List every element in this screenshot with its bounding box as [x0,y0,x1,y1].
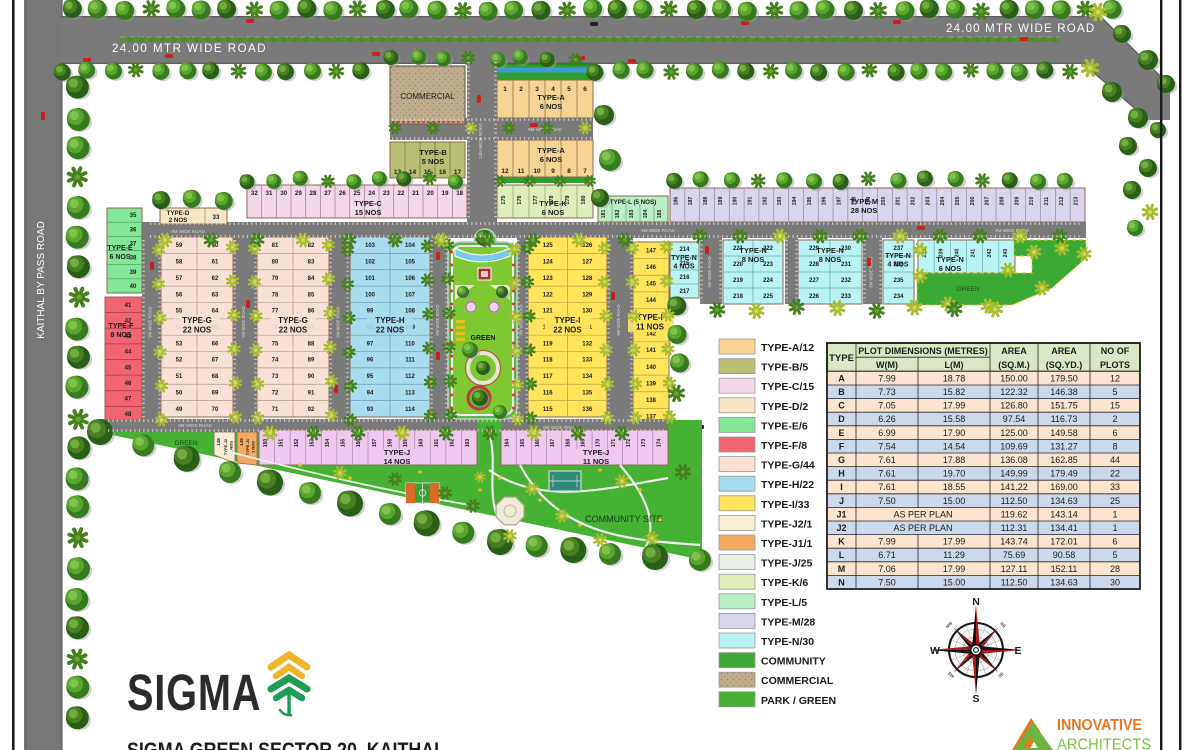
svg-text:108: 108 [405,309,416,315]
svg-text:176: 176 [517,195,523,204]
svg-text:11.29: 11.29 [943,550,965,560]
svg-text:TYPE-J/25: TYPE-J/25 [761,558,813,570]
svg-text:15.00: 15.00 [943,577,966,587]
svg-text:GREEN: GREEN [956,286,979,293]
svg-text:J2: J2 [836,523,846,533]
svg-text:235: 235 [893,278,904,284]
svg-text:22 NOS: 22 NOS [376,326,405,335]
svg-text:201: 201 [896,197,902,206]
svg-text:109.69: 109.69 [1000,441,1028,451]
svg-text:25: 25 [1110,496,1120,506]
svg-text:11 NOS: 11 NOS [583,457,609,466]
svg-text:121: 121 [543,309,554,315]
svg-text:97: 97 [367,341,374,347]
svg-text:92: 92 [308,407,315,413]
svg-text:7.61: 7.61 [878,469,896,479]
svg-text:11 NOS: 11 NOS [636,323,665,332]
svg-text:48: 48 [125,412,132,418]
svg-text:J1: J1 [836,509,846,519]
svg-text:6.26: 6.26 [878,414,896,424]
svg-text:146: 146 [646,265,657,271]
svg-text:6.99: 6.99 [878,428,896,438]
svg-text:157: 157 [372,439,378,448]
svg-text:80: 80 [272,260,279,266]
svg-text:213: 213 [1074,197,1080,206]
svg-text:TYPE-J: TYPE-J [384,448,410,457]
svg-text:57: 57 [176,276,183,282]
svg-text:I: I [840,482,843,492]
svg-text:8 NOS: 8 NOS [110,332,131,339]
svg-text:216: 216 [679,275,690,281]
svg-text:241: 241 [971,249,977,258]
svg-text:TYPE-J1/1: TYPE-J1/1 [761,538,813,550]
svg-text:19: 19 [442,190,449,197]
svg-text:23: 23 [383,190,390,197]
svg-text:N: N [972,596,980,608]
svg-text:17.99: 17.99 [943,564,966,574]
svg-text:67: 67 [212,358,219,364]
svg-text:44: 44 [1110,455,1120,465]
svg-text:24.00 MTR WIDE ROAD: 24.00 MTR WIDE ROAD [946,23,1095,35]
svg-text:(SQ.YD.): (SQ.YD.) [1046,360,1083,370]
svg-text:86: 86 [308,309,315,315]
svg-text:168: 168 [565,439,571,448]
svg-text:TYPE-H/22: TYPE-H/22 [761,479,814,491]
svg-text:5: 5 [1112,387,1117,397]
svg-text:152.11: 152.11 [1051,564,1078,574]
svg-text:25: 25 [354,190,361,197]
svg-text:28: 28 [310,190,317,197]
svg-text:L(M): L(M) [945,360,964,370]
svg-text:175: 175 [501,195,507,204]
svg-text:146.38: 146.38 [1050,387,1078,397]
svg-text:64: 64 [212,309,219,315]
svg-text:INNOVATIVE: INNOVATIVE [1057,718,1142,735]
svg-text:51: 51 [176,374,183,380]
svg-text:106: 106 [405,276,416,282]
svg-text:119: 119 [543,341,553,347]
svg-text:7.73: 7.73 [878,387,896,397]
svg-text:S: S [972,693,979,705]
svg-text:162: 162 [450,439,456,448]
svg-text:17.88: 17.88 [943,455,966,465]
svg-text:209: 209 [1014,197,1020,206]
svg-text:231: 231 [841,262,852,268]
svg-text:210: 210 [1029,197,1035,206]
svg-text:227: 227 [809,278,820,284]
svg-text:139: 139 [646,381,657,387]
svg-text:111: 111 [405,358,415,364]
svg-text:SIGMA: SIGMA [127,664,261,721]
svg-text:182: 182 [615,210,621,219]
svg-text:45: 45 [125,365,132,371]
svg-text:161: 161 [434,439,440,448]
svg-text:22 NOS: 22 NOS [553,326,582,335]
svg-text:17.99: 17.99 [943,537,966,547]
svg-text:202: 202 [911,197,917,206]
svg-text:56: 56 [176,292,183,298]
svg-text:68: 68 [212,374,219,380]
svg-text:TYPE-L/5: TYPE-L/5 [761,597,807,609]
svg-text:36: 36 [130,227,137,233]
svg-text:189: 189 [718,197,724,206]
svg-text:26: 26 [339,190,346,197]
svg-text:127.11: 127.11 [1001,564,1028,574]
svg-text:143.74: 143.74 [1000,537,1028,547]
svg-text:H: H [838,469,845,479]
svg-text:122: 122 [543,292,554,298]
svg-text:193: 193 [777,197,783,206]
svg-text:73: 73 [272,374,279,380]
svg-text:18.78: 18.78 [943,373,966,383]
svg-text:82: 82 [308,243,315,249]
svg-text:142: 142 [646,332,657,338]
svg-text:22: 22 [398,190,405,197]
svg-text:1: 1 [503,86,507,93]
svg-text:141: 141 [646,348,657,354]
svg-text:16: 16 [439,169,447,176]
svg-text:NO OF: NO OF [1101,346,1130,356]
svg-text:9M WIDE ROAD: 9M WIDE ROAD [435,304,440,335]
svg-text:TYPE: TYPE [829,353,854,364]
svg-text:126.80: 126.80 [1000,401,1028,411]
svg-text:234: 234 [893,294,904,300]
svg-text:115: 115 [543,407,553,413]
svg-text:186: 186 [673,197,679,206]
svg-text:TYPE-F/8: TYPE-F/8 [761,440,807,452]
svg-text:2: 2 [519,86,523,93]
svg-text:44: 44 [125,350,132,356]
svg-text:C: C [838,401,845,411]
svg-text:W: W [930,645,940,657]
svg-text:99: 99 [367,309,374,315]
svg-text:138: 138 [646,398,657,404]
svg-text:149: 149 [239,438,244,446]
svg-text:131.27: 131.27 [1050,441,1078,451]
svg-text:174: 174 [656,439,662,448]
svg-text:132: 132 [582,341,593,347]
svg-text:211: 211 [1044,197,1050,205]
svg-text:E: E [1014,645,1021,657]
svg-text:W(M): W(M) [876,360,898,370]
svg-text:74: 74 [272,358,279,364]
svg-text:33: 33 [213,214,220,221]
svg-text:9: 9 [551,168,555,175]
svg-text:126: 126 [582,243,593,249]
svg-text:31: 31 [266,190,273,197]
svg-text:143.14: 143.14 [1050,509,1078,519]
svg-text:27: 27 [324,190,331,197]
svg-text:14.54: 14.54 [943,441,966,451]
svg-text:243: 243 [1003,249,1009,258]
svg-text:7.99: 7.99 [878,537,896,547]
svg-text:52: 52 [176,358,183,364]
svg-text:TYPE-N/30: TYPE-N/30 [761,636,814,648]
svg-text:7.05: 7.05 [878,401,896,411]
svg-text:93: 93 [367,407,374,413]
svg-text:144: 144 [646,298,657,304]
svg-text:190: 190 [733,197,739,206]
svg-text:152: 152 [294,439,300,448]
svg-text:F: F [839,441,845,451]
svg-text:100: 100 [365,292,376,298]
svg-text:134: 134 [582,374,593,380]
svg-text:9M WIDE ROAD: 9M WIDE ROAD [171,229,205,234]
svg-text:217: 217 [679,289,690,295]
svg-text:TYPE-I: TYPE-I [637,313,663,322]
svg-text:232: 232 [841,278,852,284]
svg-text:127: 127 [582,260,593,266]
svg-text:7.50: 7.50 [878,496,896,506]
svg-text:17.99: 17.99 [943,401,966,411]
svg-text:150.00: 150.00 [1000,373,1028,383]
svg-text:ARCHITECTS: ARCHITECTS [1057,736,1151,750]
svg-text:TYPE-N: TYPE-N [885,253,911,260]
svg-text:192: 192 [762,197,768,206]
svg-text:TYPE-G: TYPE-G [182,316,212,325]
svg-text:63: 63 [212,292,219,298]
svg-text:20: 20 [427,190,434,197]
svg-text:66: 66 [212,341,219,347]
svg-text:164: 164 [505,439,511,448]
svg-text:TYPE-N: TYPE-N [671,255,697,262]
svg-text:170: 170 [596,439,602,448]
svg-text:22 NOS: 22 NOS [279,326,308,335]
svg-text:41: 41 [125,303,132,309]
svg-text:110: 110 [405,341,415,347]
svg-text:204: 204 [940,197,946,206]
svg-text:89: 89 [308,358,315,364]
svg-text:14 NOS: 14 NOS [384,457,411,466]
svg-text:187: 187 [688,197,694,206]
svg-text:233: 233 [841,294,852,300]
svg-text:TYPE-J2: TYPE-J2 [223,438,228,455]
svg-text:8: 8 [567,168,571,175]
svg-text:96: 96 [367,358,374,364]
svg-text:197: 197 [836,197,842,206]
svg-text:9M WIDE ROAD: 9M WIDE ROAD [707,256,712,287]
svg-text:6: 6 [1112,537,1117,547]
svg-text:TYPE-M/28: TYPE-M/28 [761,616,815,628]
svg-text:133: 133 [582,358,593,364]
svg-text:TYPE-A/12: TYPE-A/12 [761,342,814,354]
svg-text:9M WIDE ROAD: 9M WIDE ROAD [995,228,1029,233]
svg-text:2 NOS: 2 NOS [169,217,188,224]
svg-text:6 NOS: 6 NOS [542,208,565,217]
svg-text:14M WIDE ROAD: 14M WIDE ROAD [478,122,483,159]
svg-text:105: 105 [405,260,416,266]
svg-text:6.71: 6.71 [878,550,896,560]
svg-text:E: E [838,428,844,438]
svg-text:218: 218 [733,294,744,300]
svg-text:2: 2 [1112,414,1117,424]
svg-text:183: 183 [629,210,635,219]
svg-text:102: 102 [365,260,376,266]
svg-text:172.01: 172.01 [1050,537,1078,547]
svg-text:6: 6 [583,86,587,93]
svg-text:151: 151 [278,439,284,448]
svg-text:TYPE-L (5 NOS): TYPE-L (5 NOS) [610,199,656,206]
svg-text:4: 4 [551,86,555,93]
svg-text:75.69: 75.69 [1003,550,1026,560]
svg-text:122.32: 122.32 [1000,387,1028,397]
svg-text:155: 155 [341,439,347,448]
svg-text:46: 46 [125,381,132,387]
svg-text:1 NOS: 1 NOS [229,441,234,453]
svg-text:KAITHAL BY PASS ROAD: KAITHAL BY PASS ROAD [36,221,47,339]
svg-text:62: 62 [212,276,219,282]
svg-text:172: 172 [626,439,632,448]
svg-text:5: 5 [1112,550,1117,560]
svg-text:88: 88 [308,341,315,347]
svg-text:7.06: 7.06 [878,564,896,574]
svg-text:TYPE-G: TYPE-G [278,316,308,325]
svg-text:TYPE-I: TYPE-I [555,316,581,325]
svg-text:11: 11 [518,168,525,175]
svg-text:GREEN: GREEN [471,335,496,342]
svg-text:TYPE-A: TYPE-A [537,93,565,102]
svg-text:COMMUNITY SITE: COMMUNITY SITE [585,514,663,524]
svg-text:N: N [838,577,845,587]
svg-text:19.70: 19.70 [943,469,966,479]
svg-text:TYPE-K: TYPE-K [539,199,567,208]
svg-text:9M WIDE ROAD: 9M WIDE ROAD [178,423,212,428]
svg-text:84: 84 [308,276,315,282]
svg-text:125.00: 125.00 [1000,428,1028,438]
svg-text:242: 242 [987,249,993,258]
svg-text:15 NOS: 15 NOS [355,208,382,217]
svg-text:J: J [839,496,844,506]
svg-text:160: 160 [419,439,425,448]
svg-text:6 NOS: 6 NOS [109,254,130,261]
svg-text:TYPE-D/2: TYPE-D/2 [761,401,808,413]
svg-text:154: 154 [325,439,331,448]
svg-text:M: M [838,564,846,574]
svg-text:55: 55 [176,309,183,315]
svg-text:PLOTS: PLOTS [1100,360,1130,370]
svg-text:141.22: 141.22 [1000,482,1028,492]
svg-text:22: 22 [1110,469,1120,479]
svg-text:TYPE-A: TYPE-A [537,146,565,155]
svg-text:177: 177 [533,195,539,204]
svg-text:90.58: 90.58 [1053,550,1076,560]
svg-text:30: 30 [1110,577,1120,587]
svg-text:112.31: 112.31 [1001,523,1028,533]
svg-text:113: 113 [405,390,415,396]
svg-text:116.73: 116.73 [1051,414,1078,424]
svg-text:95: 95 [367,374,374,380]
svg-text:47: 47 [125,397,132,403]
svg-text:136.08: 136.08 [1000,455,1028,465]
svg-text:188: 188 [703,197,709,206]
svg-text:90: 90 [308,374,315,380]
svg-text:119.62: 119.62 [1001,509,1028,519]
svg-text:79: 79 [272,276,279,282]
svg-text:TYPE-J2/1: TYPE-J2/1 [761,518,813,530]
svg-text:18: 18 [456,190,463,197]
svg-text:TYPE-K/6: TYPE-K/6 [761,577,808,589]
svg-text:7.99: 7.99 [878,373,896,383]
svg-text:9M WIDE ROAD: 9M WIDE ROAD [616,304,621,335]
svg-text:134.41: 134.41 [1050,523,1078,533]
svg-text:TYPE-E: TYPE-E [107,245,133,252]
svg-text:130: 130 [582,309,593,315]
svg-text:70: 70 [212,407,219,413]
svg-text:1 NOS: 1 NOS [251,441,256,453]
svg-text:15.82: 15.82 [943,387,966,397]
svg-text:191: 191 [748,197,754,206]
svg-text:33: 33 [1110,482,1120,492]
svg-text:214: 214 [679,247,690,253]
svg-text:29: 29 [295,190,302,197]
svg-text:83: 83 [308,260,315,266]
svg-text:12: 12 [1110,373,1120,383]
svg-text:TYPE-G/44: TYPE-G/44 [761,460,815,472]
svg-text:50: 50 [176,390,183,396]
svg-text:7: 7 [583,168,587,175]
svg-text:61: 61 [212,260,219,266]
svg-text:128: 128 [582,276,593,282]
svg-text:237: 237 [893,246,904,252]
svg-text:(SQ.M.): (SQ.M.) [998,360,1030,370]
svg-text:TYPE-E/6: TYPE-E/6 [761,420,808,432]
svg-text:3: 3 [535,86,539,93]
svg-text:71: 71 [272,407,279,413]
svg-text:200: 200 [881,197,887,206]
svg-text:22 NOS: 22 NOS [183,326,212,335]
svg-text:7.50: 7.50 [878,577,896,587]
svg-text:32: 32 [251,190,258,197]
svg-text:162.85: 162.85 [1050,455,1078,465]
svg-text:101: 101 [365,276,376,282]
svg-text:181: 181 [601,210,607,219]
svg-text:AS PER PLAN: AS PER PLAN [893,509,952,519]
svg-text:D: D [838,414,845,424]
svg-text:PLOT DIMENSIONS (METRES): PLOT DIMENSIONS (METRES) [858,346,988,356]
svg-text:COMMUNITY: COMMUNITY [761,656,826,668]
svg-text:78: 78 [272,292,279,298]
svg-text:134.63: 134.63 [1050,496,1078,506]
svg-text:149.58: 149.58 [1050,428,1078,438]
svg-text:5 NOS: 5 NOS [422,157,445,166]
svg-text:194: 194 [792,197,798,206]
svg-text:4 NOS: 4 NOS [673,264,694,271]
svg-text:77: 77 [272,309,279,315]
svg-text:9M WIDE ROAD: 9M WIDE ROAD [148,306,153,337]
svg-text:SIGMA GREEN SECTOR 20, KAITHAL: SIGMA GREEN SECTOR 20, KAITHAL [127,739,445,750]
svg-text:G: G [838,455,845,465]
svg-text:49: 49 [176,407,183,413]
svg-text:226: 226 [809,294,820,300]
svg-text:117: 117 [543,374,553,380]
svg-text:5: 5 [567,86,571,93]
svg-text:9M WIDE ROAD: 9M WIDE ROAD [641,228,675,233]
svg-text:B: B [838,387,845,397]
svg-text:COMMERCIAL: COMMERCIAL [400,92,455,101]
svg-text:179.50: 179.50 [1050,373,1078,383]
svg-text:116: 116 [543,390,553,396]
svg-text:165: 165 [520,439,526,448]
svg-text:207: 207 [985,197,991,206]
svg-text:7.54: 7.54 [878,441,896,451]
svg-text:TYPE-C: TYPE-C [354,199,382,208]
svg-text:1: 1 [1112,523,1117,533]
svg-text:134.63: 134.63 [1050,577,1078,587]
svg-text:39: 39 [130,270,137,276]
svg-text:AREA: AREA [1001,346,1027,356]
svg-text:81: 81 [272,243,279,249]
svg-text:171: 171 [611,439,617,448]
